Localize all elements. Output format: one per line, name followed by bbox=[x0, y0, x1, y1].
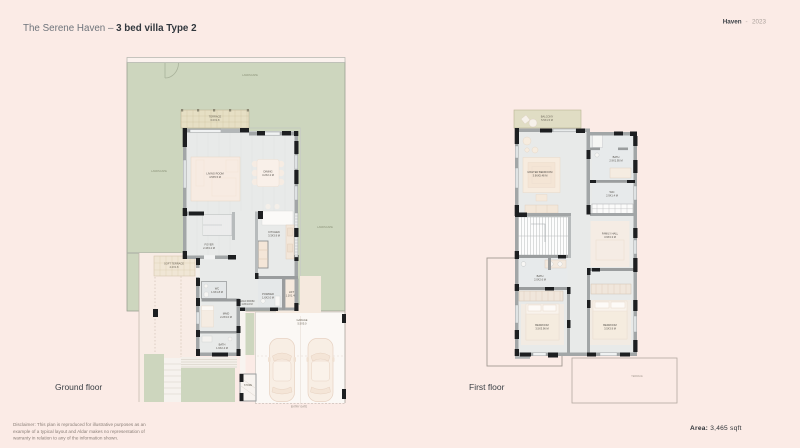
svg-text:BATH: BATH bbox=[219, 343, 226, 347]
svg-text:4.5X5.5 M: 4.5X5.5 M bbox=[209, 175, 221, 179]
svg-text:SOFT TERRACE: SOFT TERRACE bbox=[164, 262, 184, 266]
svg-text:LIVING ROOM: LIVING ROOM bbox=[206, 172, 223, 176]
svg-text:MASTER BEDROOM: MASTER BEDROOM bbox=[528, 170, 553, 174]
svg-text:TERRACE: TERRACE bbox=[631, 375, 643, 378]
svg-text:4.2X1.8: 4.2X1.8 bbox=[170, 265, 179, 269]
svg-text:KITCHEN: KITCHEN bbox=[268, 230, 280, 234]
svg-text:Haven: Haven bbox=[723, 19, 742, 26]
svg-text:2023: 2023 bbox=[752, 19, 767, 26]
svg-text:Area: 3,465 sqft: Area: 3,465 sqft bbox=[690, 425, 742, 432]
svg-text:5.5X5.0: 5.5X5.0 bbox=[298, 322, 307, 326]
svg-text:FAMILY HALL: FAMILY HALL bbox=[602, 232, 619, 236]
svg-text:1.6X2.4 M: 1.6X2.4 M bbox=[216, 346, 228, 350]
svg-text:ENTRY GATE: ENTRY GATE bbox=[291, 405, 308, 409]
svg-text:2.9X1.95 M: 2.9X1.95 M bbox=[609, 159, 622, 163]
svg-text:example of a typical layout an: example of a typical layout and Aldar ma… bbox=[13, 429, 145, 434]
svg-text:2.0X2.6 M: 2.0X2.6 M bbox=[534, 278, 546, 282]
svg-text:-: - bbox=[746, 19, 748, 26]
svg-text:FOYER: FOYER bbox=[205, 243, 214, 247]
svg-text:POWDER: POWDER bbox=[262, 292, 274, 296]
svg-text:STORE: STORE bbox=[244, 384, 253, 387]
svg-text:LANDSCAPE: LANDSCAPE bbox=[151, 169, 167, 173]
svg-text:BATH: BATH bbox=[613, 155, 620, 159]
svg-text:GARAGE: GARAGE bbox=[296, 318, 307, 322]
svg-text:1.6X1.8 M: 1.6X1.8 M bbox=[211, 290, 223, 294]
svg-text:3.96X5.48 M: 3.96X5.48 M bbox=[533, 174, 548, 178]
svg-text:2.2X3.0 M: 2.2X3.0 M bbox=[220, 315, 232, 319]
svg-text:3.3X3.9 M: 3.3X3.9 M bbox=[268, 234, 280, 238]
svg-text:3.5X3.96 M: 3.5X3.96 M bbox=[535, 327, 548, 331]
svg-text:BEDROOM: BEDROOM bbox=[603, 323, 616, 327]
svg-text:First floor: First floor bbox=[469, 382, 505, 392]
svg-text:3.9X3.3 M: 3.9X3.3 M bbox=[604, 235, 616, 239]
svg-text:WC: WC bbox=[215, 287, 219, 291]
svg-text:WIC: WIC bbox=[609, 190, 614, 194]
svg-text:warranty in relation to any of: warranty in relation to any of the infor… bbox=[13, 435, 118, 440]
svg-text:TERRACE: TERRACE bbox=[209, 115, 222, 119]
svg-text:Ground floor: Ground floor bbox=[55, 382, 102, 392]
svg-text:2.4X3.2 M: 2.4X3.2 M bbox=[203, 246, 215, 250]
svg-text:LANDSCAPE: LANDSCAPE bbox=[242, 73, 258, 77]
svg-text:DINING: DINING bbox=[263, 170, 272, 174]
svg-text:1.8X1.0 M: 1.8X1.0 M bbox=[242, 303, 253, 306]
svg-text:BATH: BATH bbox=[537, 274, 544, 278]
svg-text:MAID: MAID bbox=[223, 312, 230, 316]
svg-text:The Serene Haven – 3 bed villa: The Serene Haven – 3 bed villa Type 2 bbox=[23, 23, 197, 34]
svg-text:BEDROOM: BEDROOM bbox=[535, 323, 548, 327]
svg-text:LANDSCAPE: LANDSCAPE bbox=[317, 225, 333, 229]
svg-text:3.2X2.2 M: 3.2X2.2 M bbox=[262, 173, 274, 177]
svg-text:2.9X1.4 M: 2.9X1.4 M bbox=[606, 194, 618, 198]
svg-text:3.5X3.9 M: 3.5X3.9 M bbox=[604, 327, 616, 331]
svg-text:6.0X1.8: 6.0X1.8 bbox=[211, 118, 220, 122]
svg-text:5.5X1.5 M: 5.5X1.5 M bbox=[541, 118, 553, 122]
svg-text:BALCONY: BALCONY bbox=[541, 115, 554, 119]
svg-text:1.6X2.0 M: 1.6X2.0 M bbox=[262, 296, 274, 300]
svg-text:LIFT: LIFT bbox=[289, 290, 295, 294]
svg-text:Disclaimer: This plan is repro: Disclaimer: This plan is reproduced for … bbox=[13, 422, 146, 427]
